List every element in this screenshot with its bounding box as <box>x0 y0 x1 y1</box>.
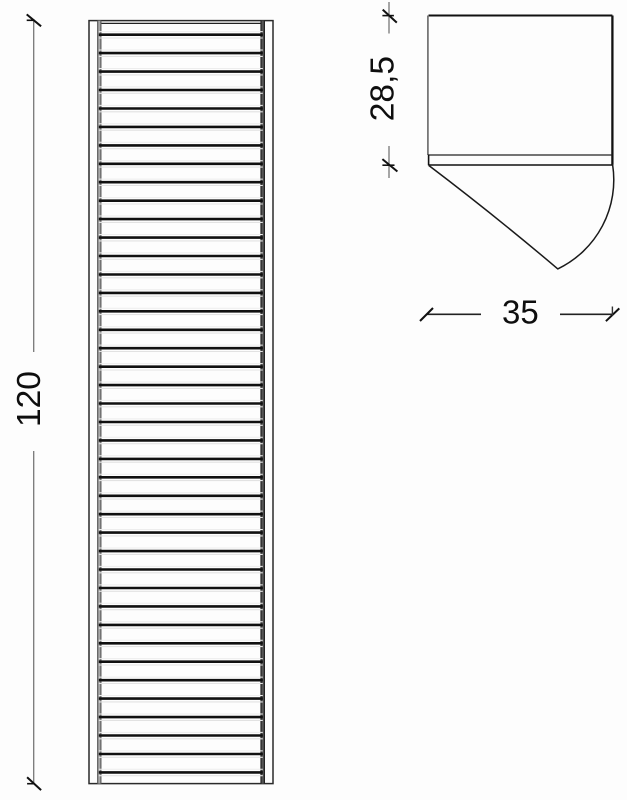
svg-text:120: 120 <box>11 371 48 427</box>
svg-text:35: 35 <box>502 294 539 331</box>
svg-text:28,5: 28,5 <box>365 56 402 121</box>
